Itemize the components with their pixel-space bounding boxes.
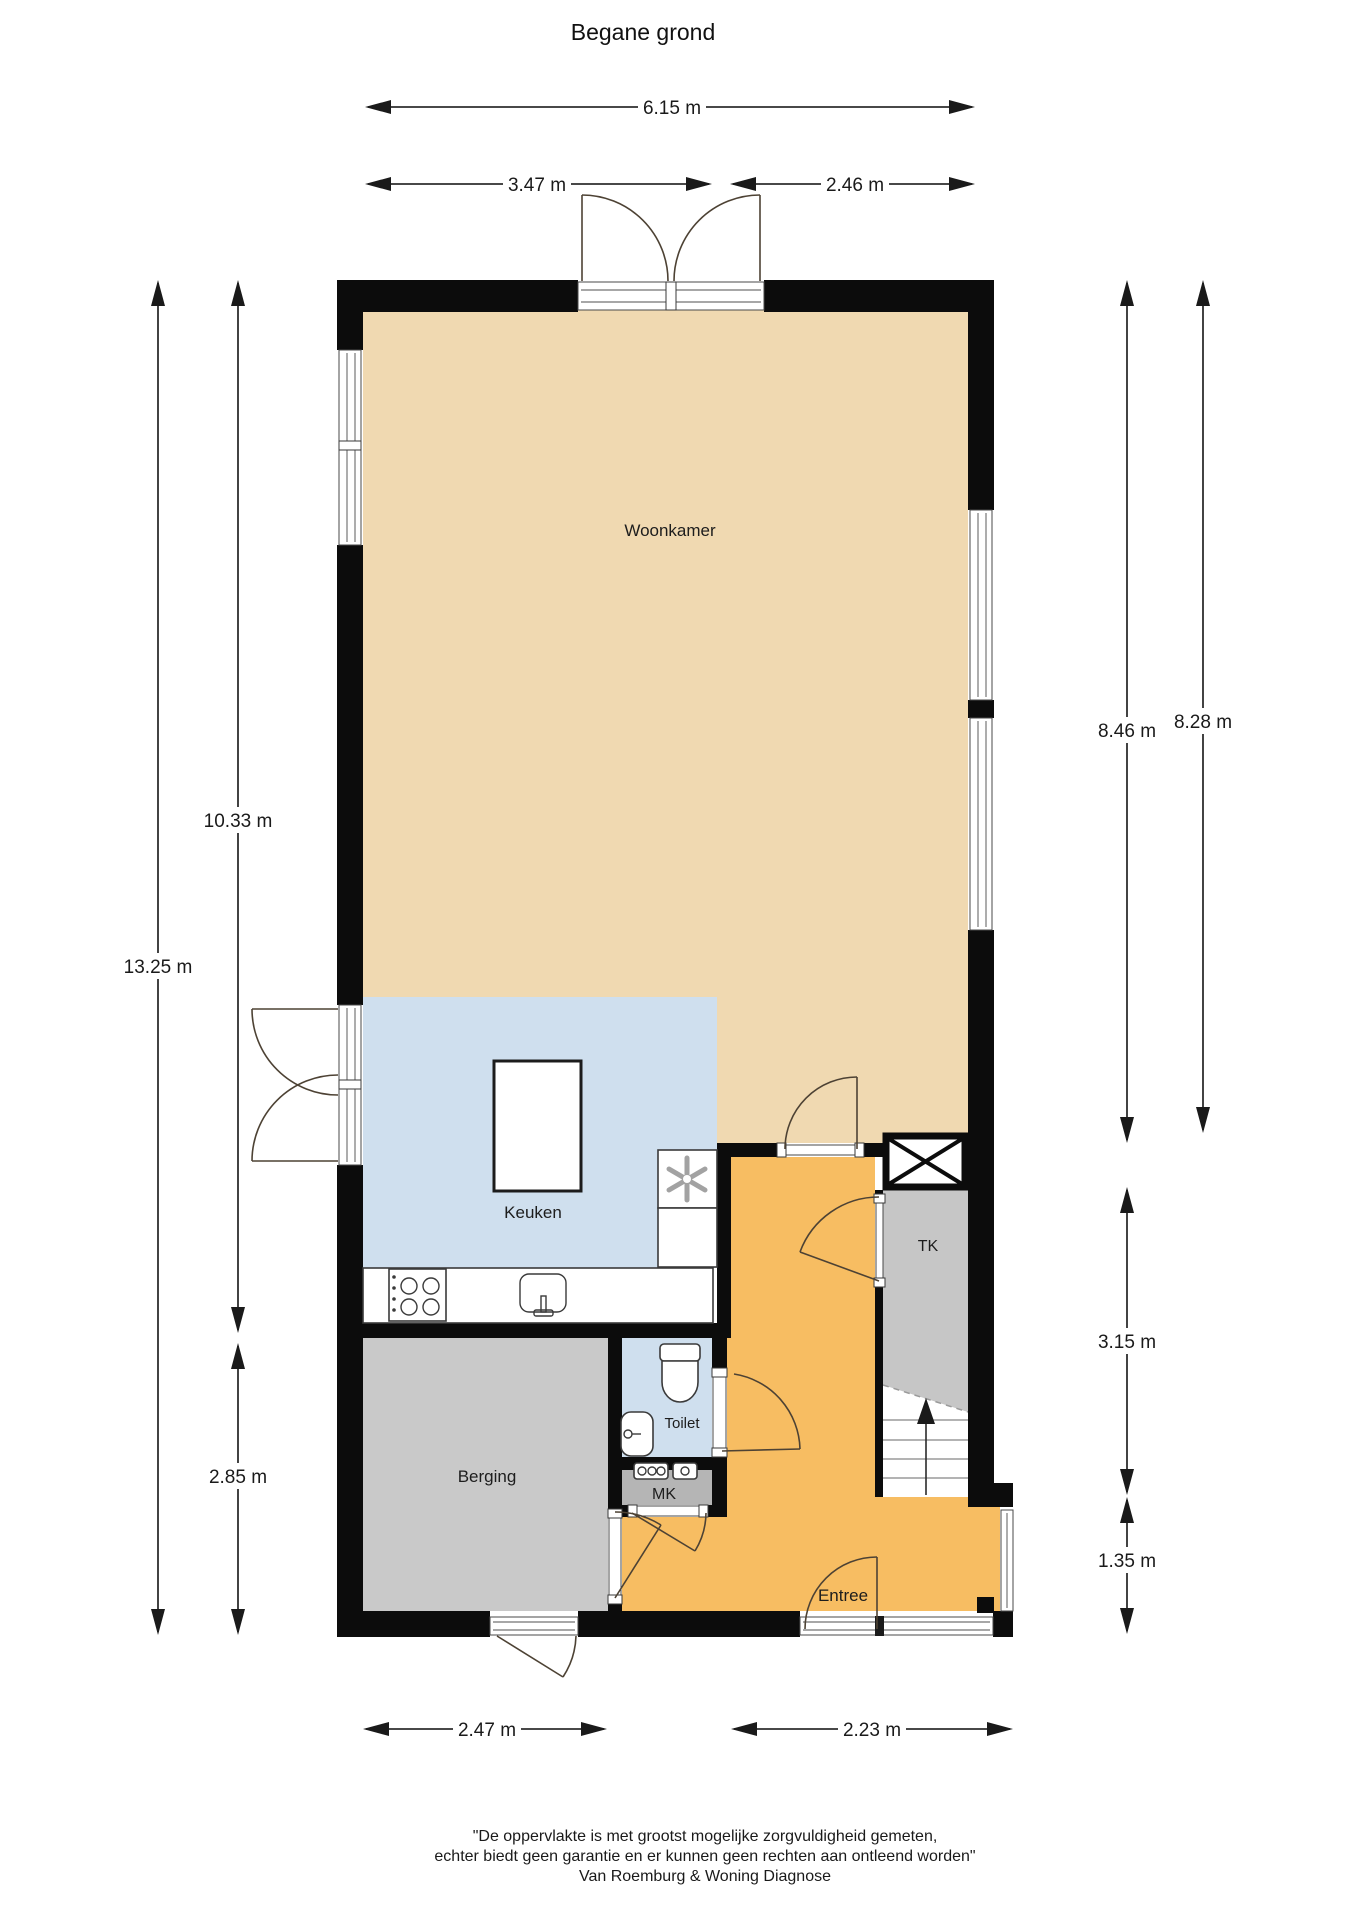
label-entree: Entree bbox=[818, 1586, 868, 1605]
dim-bottom-right: 2.23 m bbox=[731, 1716, 1013, 1742]
ventilation-unit bbox=[658, 1150, 717, 1267]
dim-bottom-left: 2.47 m bbox=[363, 1716, 607, 1742]
footer-line-2: echter biedt geen garantie en er kunnen … bbox=[434, 1848, 975, 1865]
dim-right-outer: 8.28 m bbox=[1169, 280, 1237, 1133]
label-berging: Berging bbox=[458, 1467, 517, 1486]
svg-text:13.25 m: 13.25 m bbox=[124, 957, 193, 978]
berging-door-frame bbox=[490, 1617, 578, 1635]
room-entree-corridor bbox=[727, 1157, 875, 1611]
svg-text:3.47 m: 3.47 m bbox=[508, 175, 566, 196]
door-frame-woonkamer-entree bbox=[777, 1143, 864, 1157]
wall-top-right bbox=[764, 280, 994, 312]
wall-left-upper bbox=[337, 280, 363, 350]
french-door-left-frame bbox=[339, 1005, 361, 1165]
svg-text:8.28 m: 8.28 m bbox=[1174, 712, 1232, 733]
dim-right-tk: 3.15 m bbox=[1093, 1187, 1161, 1495]
door-berging-exterior bbox=[497, 1636, 576, 1677]
wall-berging-hall-a bbox=[608, 1338, 622, 1512]
french-door-top bbox=[582, 195, 760, 281]
wall-tk-left bbox=[875, 1283, 883, 1497]
wall-bottom-middle bbox=[578, 1611, 800, 1637]
svg-text:2.85 m: 2.85 m bbox=[209, 1467, 267, 1488]
floor-plan-page: Begane grond bbox=[0, 0, 1358, 1920]
label-tk: TK bbox=[918, 1238, 939, 1255]
svg-text:1.35 m: 1.35 m bbox=[1098, 1551, 1156, 1572]
dim-right-inner: 8.46 m bbox=[1093, 280, 1161, 1143]
wall-keuken-entree bbox=[717, 1143, 731, 1338]
toilet-icon bbox=[660, 1344, 700, 1402]
dim-left-total: 13.25 m bbox=[117, 280, 199, 1635]
footer-line-1: "De oppervlakte is met grootst mogelijke… bbox=[473, 1828, 938, 1845]
svg-text:2.23 m: 2.23 m bbox=[843, 1720, 901, 1741]
wall-top-left bbox=[337, 280, 578, 312]
wall-bottom-right bbox=[993, 1611, 1013, 1637]
dim-top-total: 6.15 m bbox=[365, 94, 975, 120]
svg-text:8.46 m: 8.46 m bbox=[1098, 721, 1156, 742]
wall-right-lower bbox=[968, 930, 994, 1483]
label-toilet: Toilet bbox=[664, 1415, 700, 1432]
french-door-top-frame bbox=[578, 282, 764, 310]
svg-text:6.15 m: 6.15 m bbox=[643, 98, 701, 119]
room-entree-hall bbox=[622, 1517, 727, 1611]
wall-bottom-left bbox=[337, 1611, 490, 1637]
window-entree-right bbox=[1001, 1510, 1013, 1611]
door-frame-toilet bbox=[712, 1368, 727, 1457]
dim-top-left: 3.47 m bbox=[365, 171, 712, 197]
window-right-upper bbox=[970, 510, 992, 700]
wall-entree-column bbox=[977, 1597, 994, 1613]
door-frame-tk bbox=[874, 1194, 885, 1287]
dim-left-upper: 10.33 m bbox=[197, 280, 279, 1333]
kitchen-island bbox=[494, 1061, 581, 1191]
label-woonkamer: Woonkamer bbox=[624, 521, 716, 540]
footer-line-3: Van Roemburg & Woning Diagnose bbox=[579, 1868, 831, 1885]
svg-text:3.15 m: 3.15 m bbox=[1098, 1332, 1156, 1353]
french-door-left bbox=[252, 1009, 338, 1161]
dim-top-right: 2.46 m bbox=[730, 171, 975, 197]
wall-toilet-entree-b bbox=[712, 1453, 727, 1517]
wall-right-upper bbox=[968, 280, 994, 510]
svg-text:2.46 m: 2.46 m bbox=[826, 175, 884, 196]
label-keuken: Keuken bbox=[504, 1203, 562, 1222]
wall-right-step bbox=[968, 1483, 1013, 1507]
wall-left-lower bbox=[337, 1165, 363, 1637]
window-right-lower bbox=[970, 718, 992, 930]
window-left bbox=[339, 350, 361, 545]
shaft-box bbox=[886, 1136, 965, 1187]
dim-right-entree: 1.35 m bbox=[1093, 1497, 1161, 1634]
meter-icons bbox=[634, 1463, 697, 1479]
stove-icon bbox=[389, 1269, 446, 1321]
wall-right-mullion bbox=[968, 700, 994, 718]
room-entree-bottom bbox=[875, 1497, 1000, 1611]
hand-basin-icon bbox=[621, 1412, 653, 1456]
label-mk: MK bbox=[652, 1486, 676, 1503]
room-tk bbox=[883, 1190, 968, 1412]
wall-left-middle bbox=[337, 545, 363, 1005]
svg-text:10.33 m: 10.33 m bbox=[204, 811, 273, 832]
floor-plan-canvas: Begane grond bbox=[0, 0, 1358, 1920]
page-title: Begane grond bbox=[571, 19, 716, 45]
front-door-frame bbox=[800, 1616, 993, 1636]
footer-disclaimer: "De oppervlakte is met grootst mogelijke… bbox=[434, 1828, 975, 1885]
svg-text:2.47 m: 2.47 m bbox=[458, 1720, 516, 1741]
wall-toilet-entree-a bbox=[712, 1338, 727, 1372]
dim-left-lower: 2.85 m bbox=[204, 1343, 272, 1635]
wall-keuken-berging bbox=[337, 1323, 731, 1338]
